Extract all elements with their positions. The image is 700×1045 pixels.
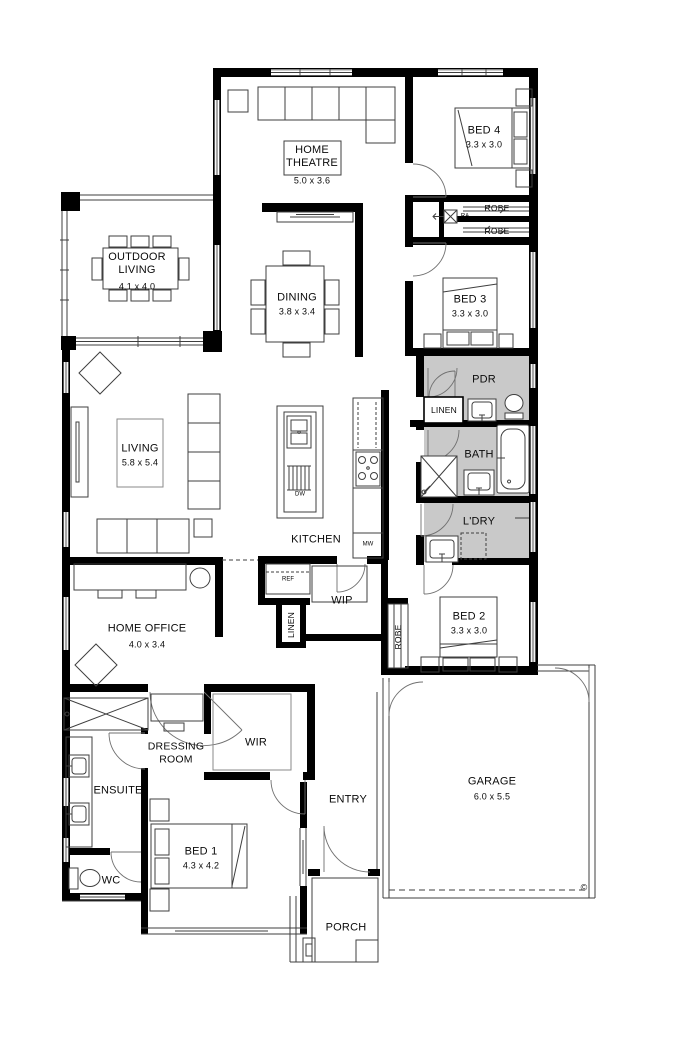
microwave-label: MW: [363, 541, 374, 548]
pdr-label: PDR: [472, 373, 496, 386]
dining-label: DINING: [277, 291, 317, 304]
bath-label: BATH: [464, 448, 493, 461]
linen1-label: LINEN: [431, 405, 457, 415]
dressing-furniture: [151, 694, 203, 731]
garage-dims: 6.0 x 5.5: [474, 792, 510, 803]
copyright-mark: ©: [581, 883, 588, 894]
wip-label: WIP: [331, 594, 352, 607]
bed4-label: BED 4: [468, 124, 501, 137]
walls: [61, 68, 538, 934]
home-theatre-label: HOME THEATRE: [272, 144, 352, 170]
dressing-room-label: DRESSING ROOM: [136, 740, 216, 765]
bed1-label: BED 1: [185, 845, 218, 858]
dining-dims: 3.8 x 3.4: [279, 307, 315, 318]
home-office-label: HOME OFFICE: [108, 622, 187, 635]
return-air-label: RA: [461, 213, 469, 220]
outdoor-living-label: OUTDOOR LIVING: [97, 251, 177, 277]
robe3-label: ROBE: [393, 625, 403, 650]
ensuite-label: ENSUITE: [93, 784, 142, 797]
entry-label: ENTRY: [329, 793, 367, 806]
wir-shelf: [213, 694, 291, 770]
thin-walls: [60, 195, 595, 962]
ldry-label: L'DRY: [463, 515, 495, 528]
living-dims: 5.8 x 5.4: [122, 458, 158, 469]
wir-label: WIR: [245, 736, 267, 749]
fridge-label: REF: [282, 576, 294, 583]
dishwasher-label: DW: [295, 491, 305, 498]
robe1-label: ROBE: [485, 203, 510, 213]
kitchen-label: KITCHEN: [291, 533, 341, 546]
tv-unit-theatre: [277, 212, 353, 222]
ensuite-fixtures: [64, 698, 148, 847]
porch-label: PORCH: [326, 921, 367, 934]
robe2-label: ROBE: [485, 226, 510, 236]
bed3-dims: 3.3 x 3.0: [452, 309, 488, 320]
kitchen-bench: [353, 398, 383, 558]
bed2-dims: 3.3 x 3.0: [451, 626, 487, 637]
floor-plan: HOME THEATRE 5.0 x 3.6 BED 4 3.3 x 3.0 R…: [0, 0, 700, 1045]
living-label: LIVING: [121, 442, 158, 455]
kitchen-island: [277, 406, 323, 518]
bed1-dims: 4.3 x 4.2: [183, 861, 219, 872]
bed3-label: BED 3: [454, 293, 487, 306]
home-office-dims: 4.0 x 3.4: [129, 640, 165, 651]
bed4-furniture: [455, 89, 532, 187]
return-air-icon: [433, 210, 457, 223]
bed4-dims: 3.3 x 3.0: [466, 140, 502, 151]
wc-label: WC: [102, 874, 121, 887]
toilet-icon: [69, 868, 100, 889]
garage-label: GARAGE: [468, 775, 516, 788]
bed2-label: BED 2: [453, 610, 486, 623]
outdoor-living-dims: 4.1 x 4.0: [119, 282, 155, 293]
linen2-label: LINEN: [286, 612, 296, 638]
theatre-sofa: [228, 87, 395, 143]
home-theatre-dims: 5.0 x 3.6: [294, 176, 330, 187]
